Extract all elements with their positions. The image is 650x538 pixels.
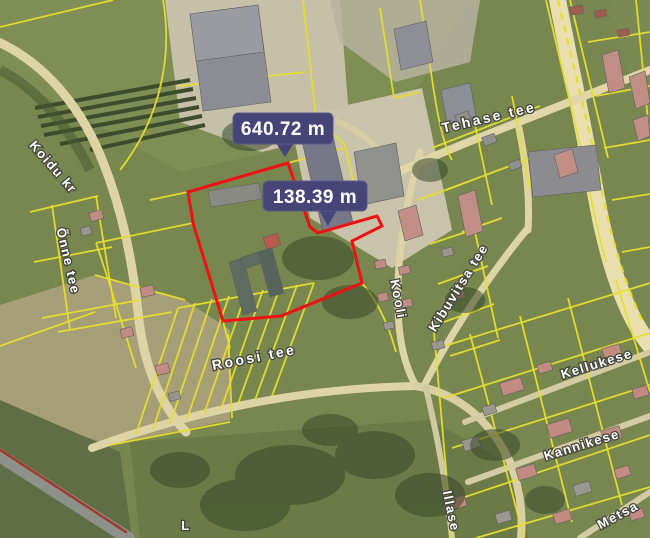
measurement-value-total: 640.72 m bbox=[241, 119, 325, 140]
street-label-partial: L bbox=[181, 518, 190, 533]
map-canvas[interactable]: Koidu kr Õnne tee Tehase tee Kooli Kibuv… bbox=[0, 0, 650, 538]
map-svg: Koidu kr Õnne tee Tehase tee Kooli Kibuv… bbox=[0, 0, 650, 538]
measurement-value-segment: 138.39 m bbox=[273, 187, 357, 208]
